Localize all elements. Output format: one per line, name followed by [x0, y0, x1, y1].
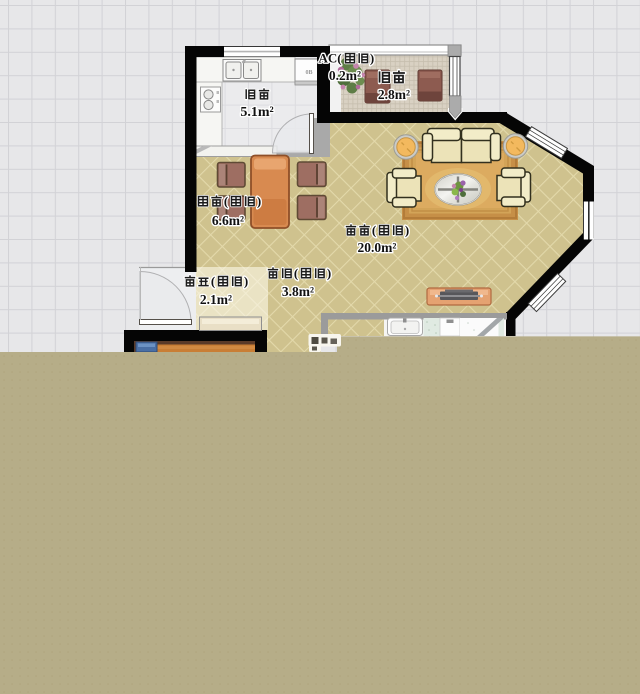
svg-text:20.0m²: 20.0m²: [358, 240, 397, 255]
svg-text:): ): [327, 266, 331, 281]
svg-text:5.1m²: 5.1m²: [240, 105, 273, 120]
svg-text:(: (: [211, 274, 215, 289]
svg-text:3.8m²: 3.8m²: [282, 284, 314, 299]
svg-text:6.6m²: 6.6m²: [212, 213, 244, 228]
svg-text:): ): [370, 51, 374, 66]
svg-text:): ): [257, 194, 261, 209]
svg-text:2.1m²: 2.1m²: [200, 292, 232, 307]
svg-text:(: (: [294, 266, 298, 281]
svg-text:0B: 0B: [305, 70, 312, 76]
svg-text:2.8m²: 2.8m²: [378, 87, 410, 102]
svg-text:(: (: [224, 194, 228, 209]
svg-text:(: (: [372, 223, 376, 238]
svg-text:): ): [405, 223, 409, 238]
svg-text:): ): [244, 274, 248, 289]
svg-text:0.2m²: 0.2m²: [329, 68, 361, 83]
svg-text:AC(: AC(: [318, 51, 341, 66]
